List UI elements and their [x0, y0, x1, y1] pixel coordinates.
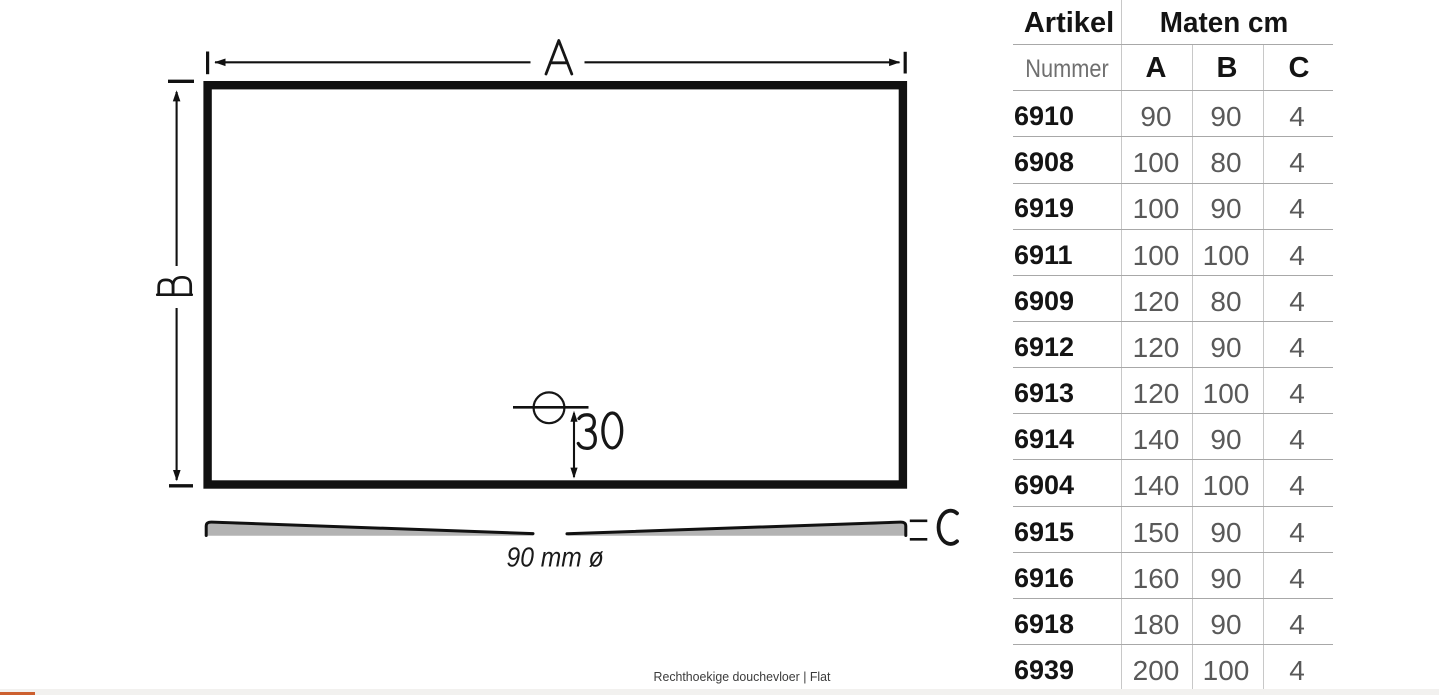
svg-text:90 mm ø: 90 mm ø — [507, 541, 604, 573]
